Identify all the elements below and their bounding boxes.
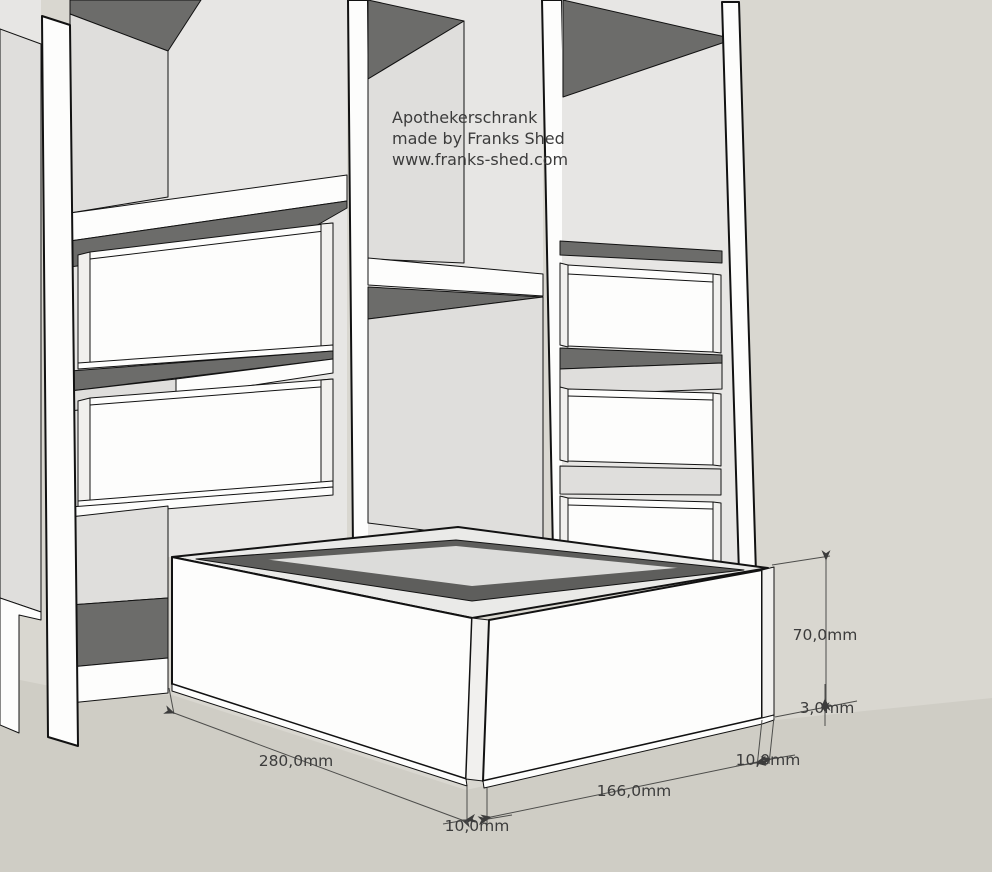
box-end-edge [762, 567, 774, 718]
drawer-box-left-2 [78, 379, 333, 507]
dim-label-70mm: 70,0mm [793, 626, 858, 644]
drawer-box-right-2 [560, 387, 721, 466]
title-line-1: Apothekerschrank [392, 108, 538, 127]
shadow-bottom-gap [70, 598, 168, 667]
title-line-3: www.franks-shed.com [392, 150, 568, 169]
center-bay [368, 0, 543, 549]
dim-label-3mm: 3,0mm [800, 699, 855, 717]
dim-label-280mm: 280,0mm [259, 752, 334, 770]
title-line-2: made by Franks Shed [392, 129, 565, 148]
cabinet-3d-drawing: 280,0mm 10,0mm 166,0mm 10,0mm 70,0mm [0, 0, 992, 872]
dim-label-10mm-front: 10,0mm [445, 817, 510, 835]
dim-label-10mm-right: 10,0mm [736, 751, 801, 769]
drawer-box-right-1 [560, 263, 721, 353]
dim-label-166mm: 166,0mm [597, 782, 672, 800]
sketchup-viewport: 280,0mm 10,0mm 166,0mm 10,0mm 70,0mm [0, 0, 992, 872]
